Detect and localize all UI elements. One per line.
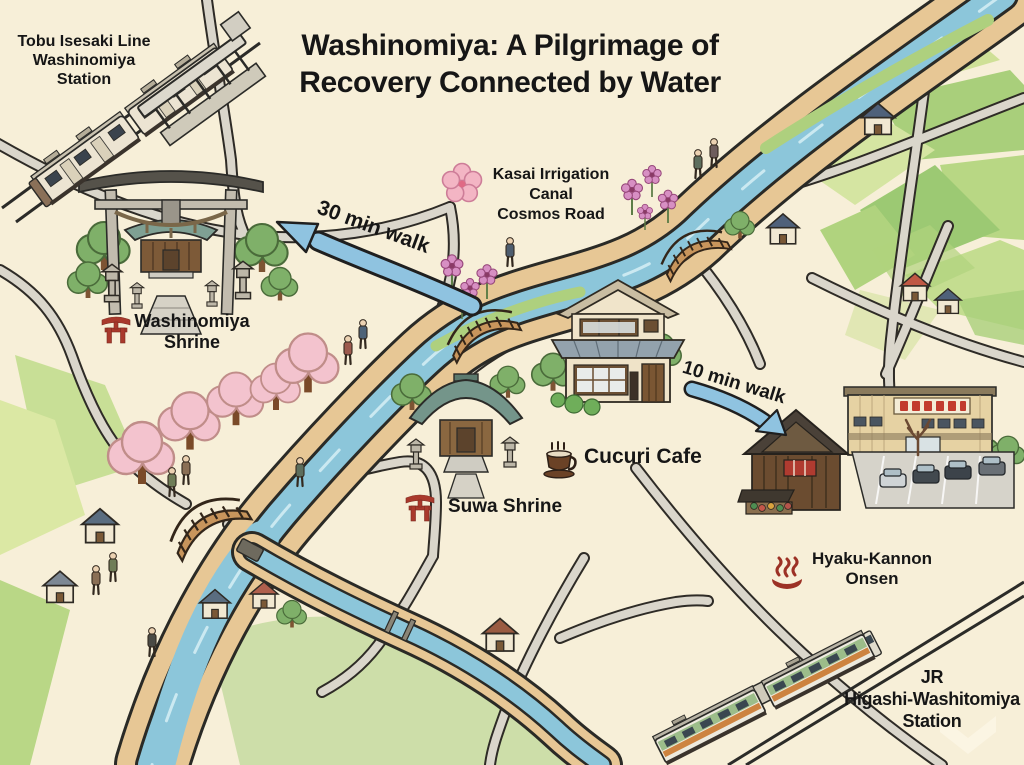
map-illustration	[0, 0, 1024, 765]
label-suwa-shrine: Suwa Shrine	[448, 496, 598, 518]
label-cucuri-cafe: Cucuri Cafe	[584, 445, 764, 469]
label-tobu-station: Tobu Isesaki Line Washinomiya Station	[10, 32, 158, 89]
label-jr-station: JR Higashi-Washitomiya Station	[834, 666, 1024, 732]
label-washinomiya-shrine: Washinomiya Shrine	[130, 311, 254, 353]
label-hyaku-kannon-onsen: Hyaku-Kannon Onsen	[806, 549, 938, 589]
map-canvas: Washinomiya: A Pilgrimage of Recovery Co…	[0, 0, 1024, 765]
torii-icon	[99, 313, 133, 345]
coffee-cup-icon	[539, 440, 581, 482]
label-kasai-canal: Kasai Irrigation Canal Cosmos Road	[484, 165, 618, 225]
hot-spring-icon	[768, 552, 806, 594]
torii-icon	[403, 491, 437, 523]
cherry-blossom-icon	[438, 160, 486, 208]
page-title: Washinomiya: A Pilgrimage of Recovery Co…	[248, 27, 772, 101]
